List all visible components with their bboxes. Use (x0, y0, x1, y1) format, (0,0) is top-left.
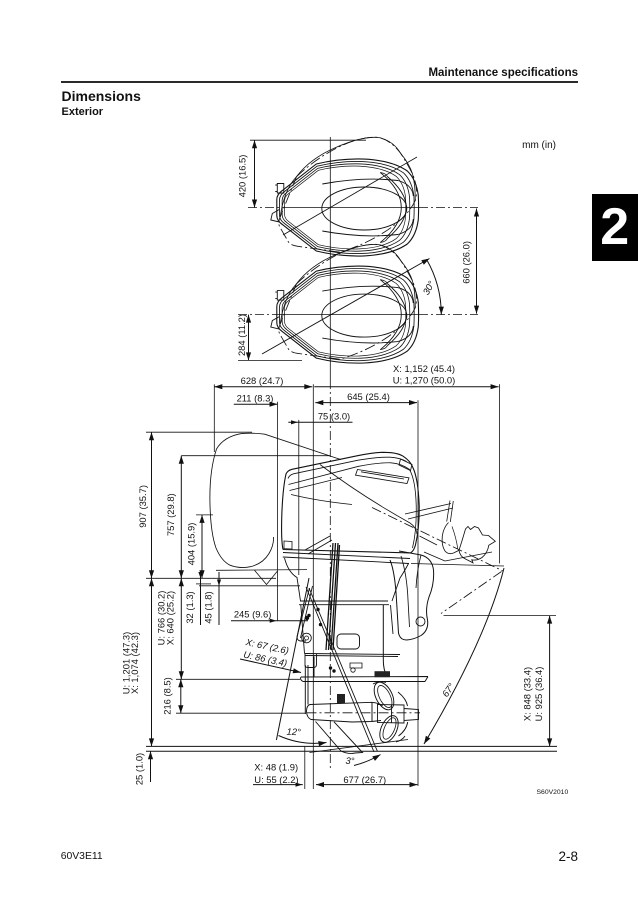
svg-text:X: 1,152 (45.4): X: 1,152 (45.4) (393, 363, 455, 374)
svg-text:757 (29.8): 757 (29.8) (165, 493, 176, 536)
svg-text:628 (24.7): 628 (24.7) (241, 375, 284, 386)
svg-text:U: 925 (36.4): U: 925 (36.4) (533, 667, 544, 722)
svg-text:404 (15.9): 404 (15.9) (185, 523, 196, 566)
svg-text:677 (26.7): 677 (26.7) (343, 774, 386, 785)
svg-text:U: 766 (30.2): U: 766 (30.2) (155, 591, 166, 646)
svg-text:X: 848 (33.4): X: 848 (33.4) (522, 667, 533, 721)
svg-text:645 (25.4): 645 (25.4) (347, 391, 390, 402)
svg-text:30°: 30° (420, 279, 437, 297)
svg-text:25 (1.0): 25 (1.0) (134, 753, 145, 785)
svg-text:75 (3.0): 75 (3.0) (318, 410, 350, 421)
svg-text:U: 1,270 (50.0): U: 1,270 (50.0) (393, 375, 456, 386)
svg-text:67°: 67° (440, 681, 457, 699)
svg-text:12°: 12° (286, 726, 301, 738)
svg-text:907 (35.7): 907 (35.7) (137, 485, 148, 528)
svg-text:S60V2010: S60V2010 (537, 789, 569, 796)
svg-text:420 (16.5): 420 (16.5) (236, 155, 247, 198)
svg-text:284 (11.2): 284 (11.2) (236, 314, 247, 356)
svg-text:U: 1,201 (47.3): U: 1,201 (47.3) (121, 632, 132, 695)
svg-text:X: 48 (1.9): X: 48 (1.9) (254, 762, 298, 773)
svg-text:245 (9.6): 245 (9.6) (234, 609, 272, 620)
svg-text:32 (1.3): 32 (1.3) (184, 591, 195, 623)
svg-text:3°: 3° (345, 755, 355, 766)
svg-text:216 (8.5): 216 (8.5) (162, 677, 173, 715)
svg-text:U: 55 (2.2): U: 55 (2.2) (254, 774, 298, 785)
svg-text:660 (26.0): 660 (26.0) (460, 241, 471, 284)
svg-text:211 (8.3): 211 (8.3) (237, 393, 274, 404)
svg-text:45 (1.8): 45 (1.8) (203, 591, 214, 623)
